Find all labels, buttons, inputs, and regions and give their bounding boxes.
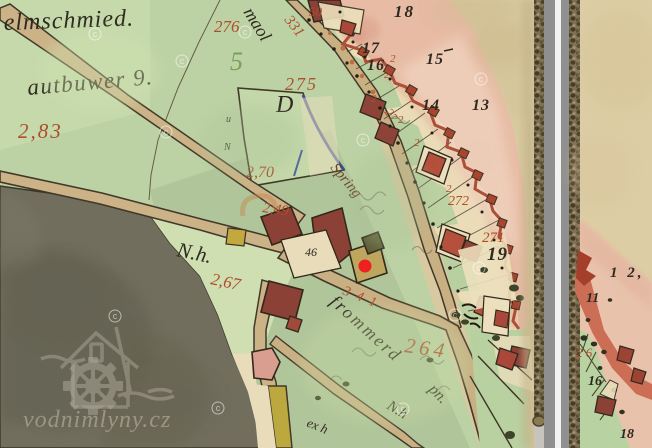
svg-text:2: 2: [390, 53, 396, 65]
svg-text:2 6: 2 6: [576, 345, 593, 360]
svg-text:272: 272: [448, 194, 469, 209]
svg-text:275: 275: [285, 74, 318, 94]
svg-text:1 2,: 1 2,: [610, 265, 645, 281]
svg-text:46: 46: [305, 245, 317, 259]
svg-text:c: c: [401, 404, 406, 414]
svg-text:17: 17: [362, 40, 380, 57]
svg-text:2: 2: [414, 137, 420, 149]
svg-text:c: c: [479, 74, 484, 84]
svg-text:2: 2: [371, 93, 377, 105]
svg-text:2,83: 2,83: [18, 119, 63, 143]
svg-text:c: c: [216, 403, 221, 413]
svg-text:11: 11: [586, 291, 599, 306]
svg-text:15: 15: [426, 51, 444, 68]
svg-text:vodnimlyny.cz: vodnimlyny.cz: [23, 407, 171, 433]
svg-text:13: 13: [472, 97, 490, 114]
svg-text:c: c: [477, 263, 482, 273]
svg-text:276: 276: [214, 17, 240, 36]
svg-text:271: 271: [482, 230, 505, 246]
svg-text:5: 5: [230, 47, 243, 76]
svg-text:c: c: [453, 310, 458, 320]
svg-text:c: c: [93, 29, 98, 39]
svg-text:14: 14: [422, 97, 440, 114]
svg-text:19: 19: [487, 244, 508, 265]
svg-text:50: 50: [309, 4, 323, 19]
svg-text:2: 2: [430, 159, 436, 171]
svg-text:c: c: [113, 311, 118, 321]
svg-text:18: 18: [620, 427, 634, 442]
svg-text:c: c: [243, 27, 248, 37]
svg-text:16: 16: [588, 374, 602, 389]
svg-text:c: c: [180, 56, 185, 66]
svg-text:c: c: [164, 127, 169, 137]
svg-text:2: 2: [398, 114, 404, 126]
svg-text:c: c: [361, 135, 366, 145]
svg-text:18: 18: [394, 2, 415, 21]
svg-text:16: 16: [367, 57, 385, 74]
